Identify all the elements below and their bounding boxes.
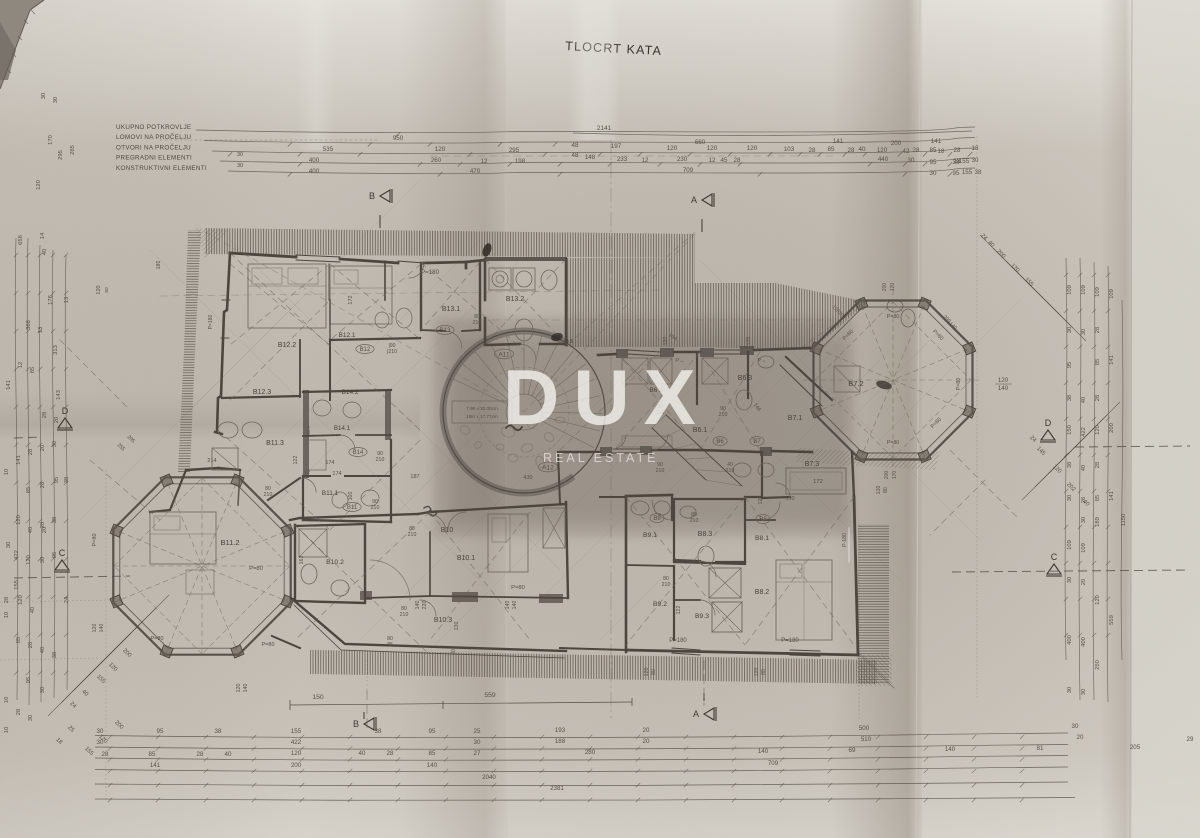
svg-text:REAL ESTATE: REAL ESTATE — [543, 451, 658, 465]
svg-text:DUX: DUX — [503, 353, 710, 441]
